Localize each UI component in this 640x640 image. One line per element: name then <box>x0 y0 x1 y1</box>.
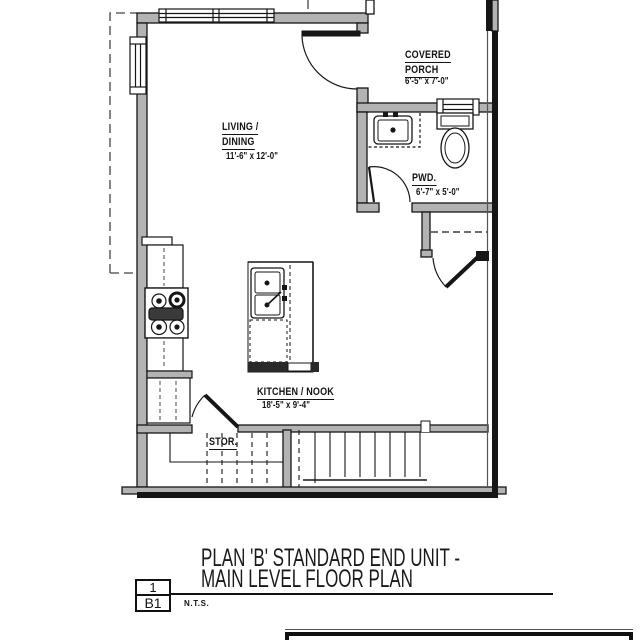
adjacent-frame-thin-line <box>285 629 633 630</box>
room-dim-living-dining: 11'-6" x 12'-0" <box>226 151 278 162</box>
title-underline <box>135 593 553 595</box>
room-label-covered-porch: COVERED PORCH <box>405 48 451 78</box>
doors <box>192 31 481 427</box>
adjacent-frame-left-edge <box>285 632 289 640</box>
sheet-title: PLAN 'B' STANDARD END UNIT - MAIN LEVEL … <box>201 548 460 590</box>
kitchen-counters <box>142 237 192 423</box>
powder-room-fixtures <box>366 112 473 168</box>
floor-plan-canvas: LIVING / DINING 11'-6" x 12'-0" COVERED … <box>0 0 640 640</box>
top-window <box>159 9 274 22</box>
kitchen-sink-icon <box>251 268 287 318</box>
left-window <box>130 37 146 94</box>
scale-note: N.T.S. <box>184 599 209 608</box>
adjacent-frame-right-edge <box>629 632 633 640</box>
sheet-number: B1 <box>137 594 169 611</box>
room-label-living-dining: LIVING / DINING <box>222 120 258 150</box>
sheet-title-line2: MAIN LEVEL FLOOR PLAN <box>201 569 460 590</box>
room-label-kitchen-nook: KITCHEN / NOOK <box>257 385 334 400</box>
room-label-storage: STOR. <box>209 435 237 450</box>
room-dim-covered-porch: 6'-5" x 7'-0" <box>405 76 449 87</box>
toilet-icon <box>437 113 473 168</box>
detail-number: 1 <box>137 581 169 594</box>
kitchen-island <box>248 262 319 372</box>
room-dim-kitchen-nook: 18'-5" x 9'-4" <box>262 400 310 411</box>
powder-door <box>369 167 410 202</box>
room-label-powder: PWD. <box>412 171 436 186</box>
storage-door <box>192 395 238 427</box>
room-dim-powder: 6'-7" x 5'-0" <box>416 187 460 198</box>
porch-entry-door <box>302 31 360 89</box>
vanity-sink-icon <box>366 112 420 147</box>
adjacent-frame-top-edge <box>285 632 633 636</box>
title-block: 1 B1 <box>135 579 171 612</box>
front-door <box>433 254 481 287</box>
range-icon <box>145 288 188 338</box>
